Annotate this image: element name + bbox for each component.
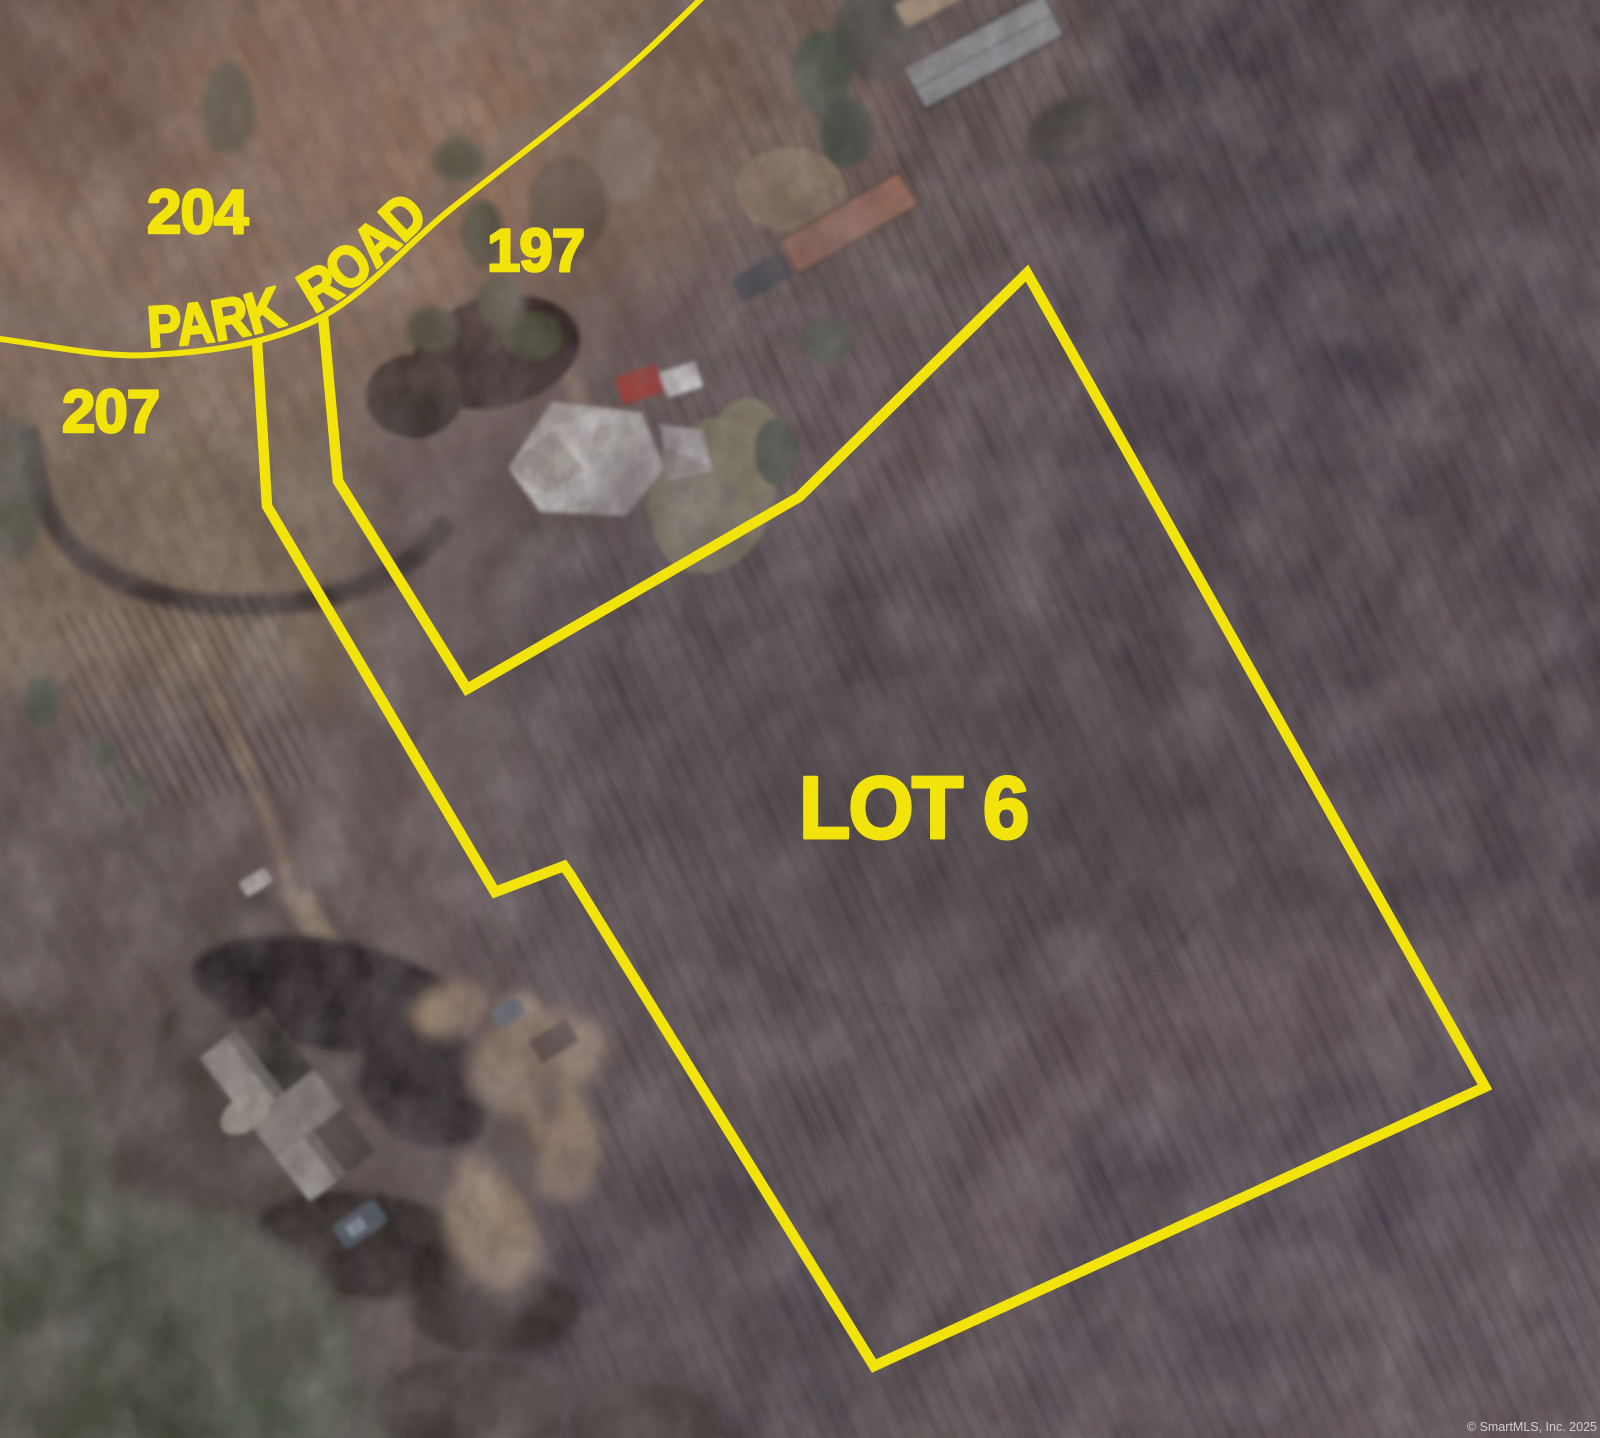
- svg-text:204: 204: [147, 178, 249, 247]
- svg-text:207: 207: [62, 378, 159, 445]
- svg-text:LOT 6: LOT 6: [799, 759, 1028, 857]
- svg-text:© SmartMLS, Inc. 2025: © SmartMLS, Inc. 2025: [1467, 1420, 1597, 1434]
- svg-text:197: 197: [487, 217, 584, 284]
